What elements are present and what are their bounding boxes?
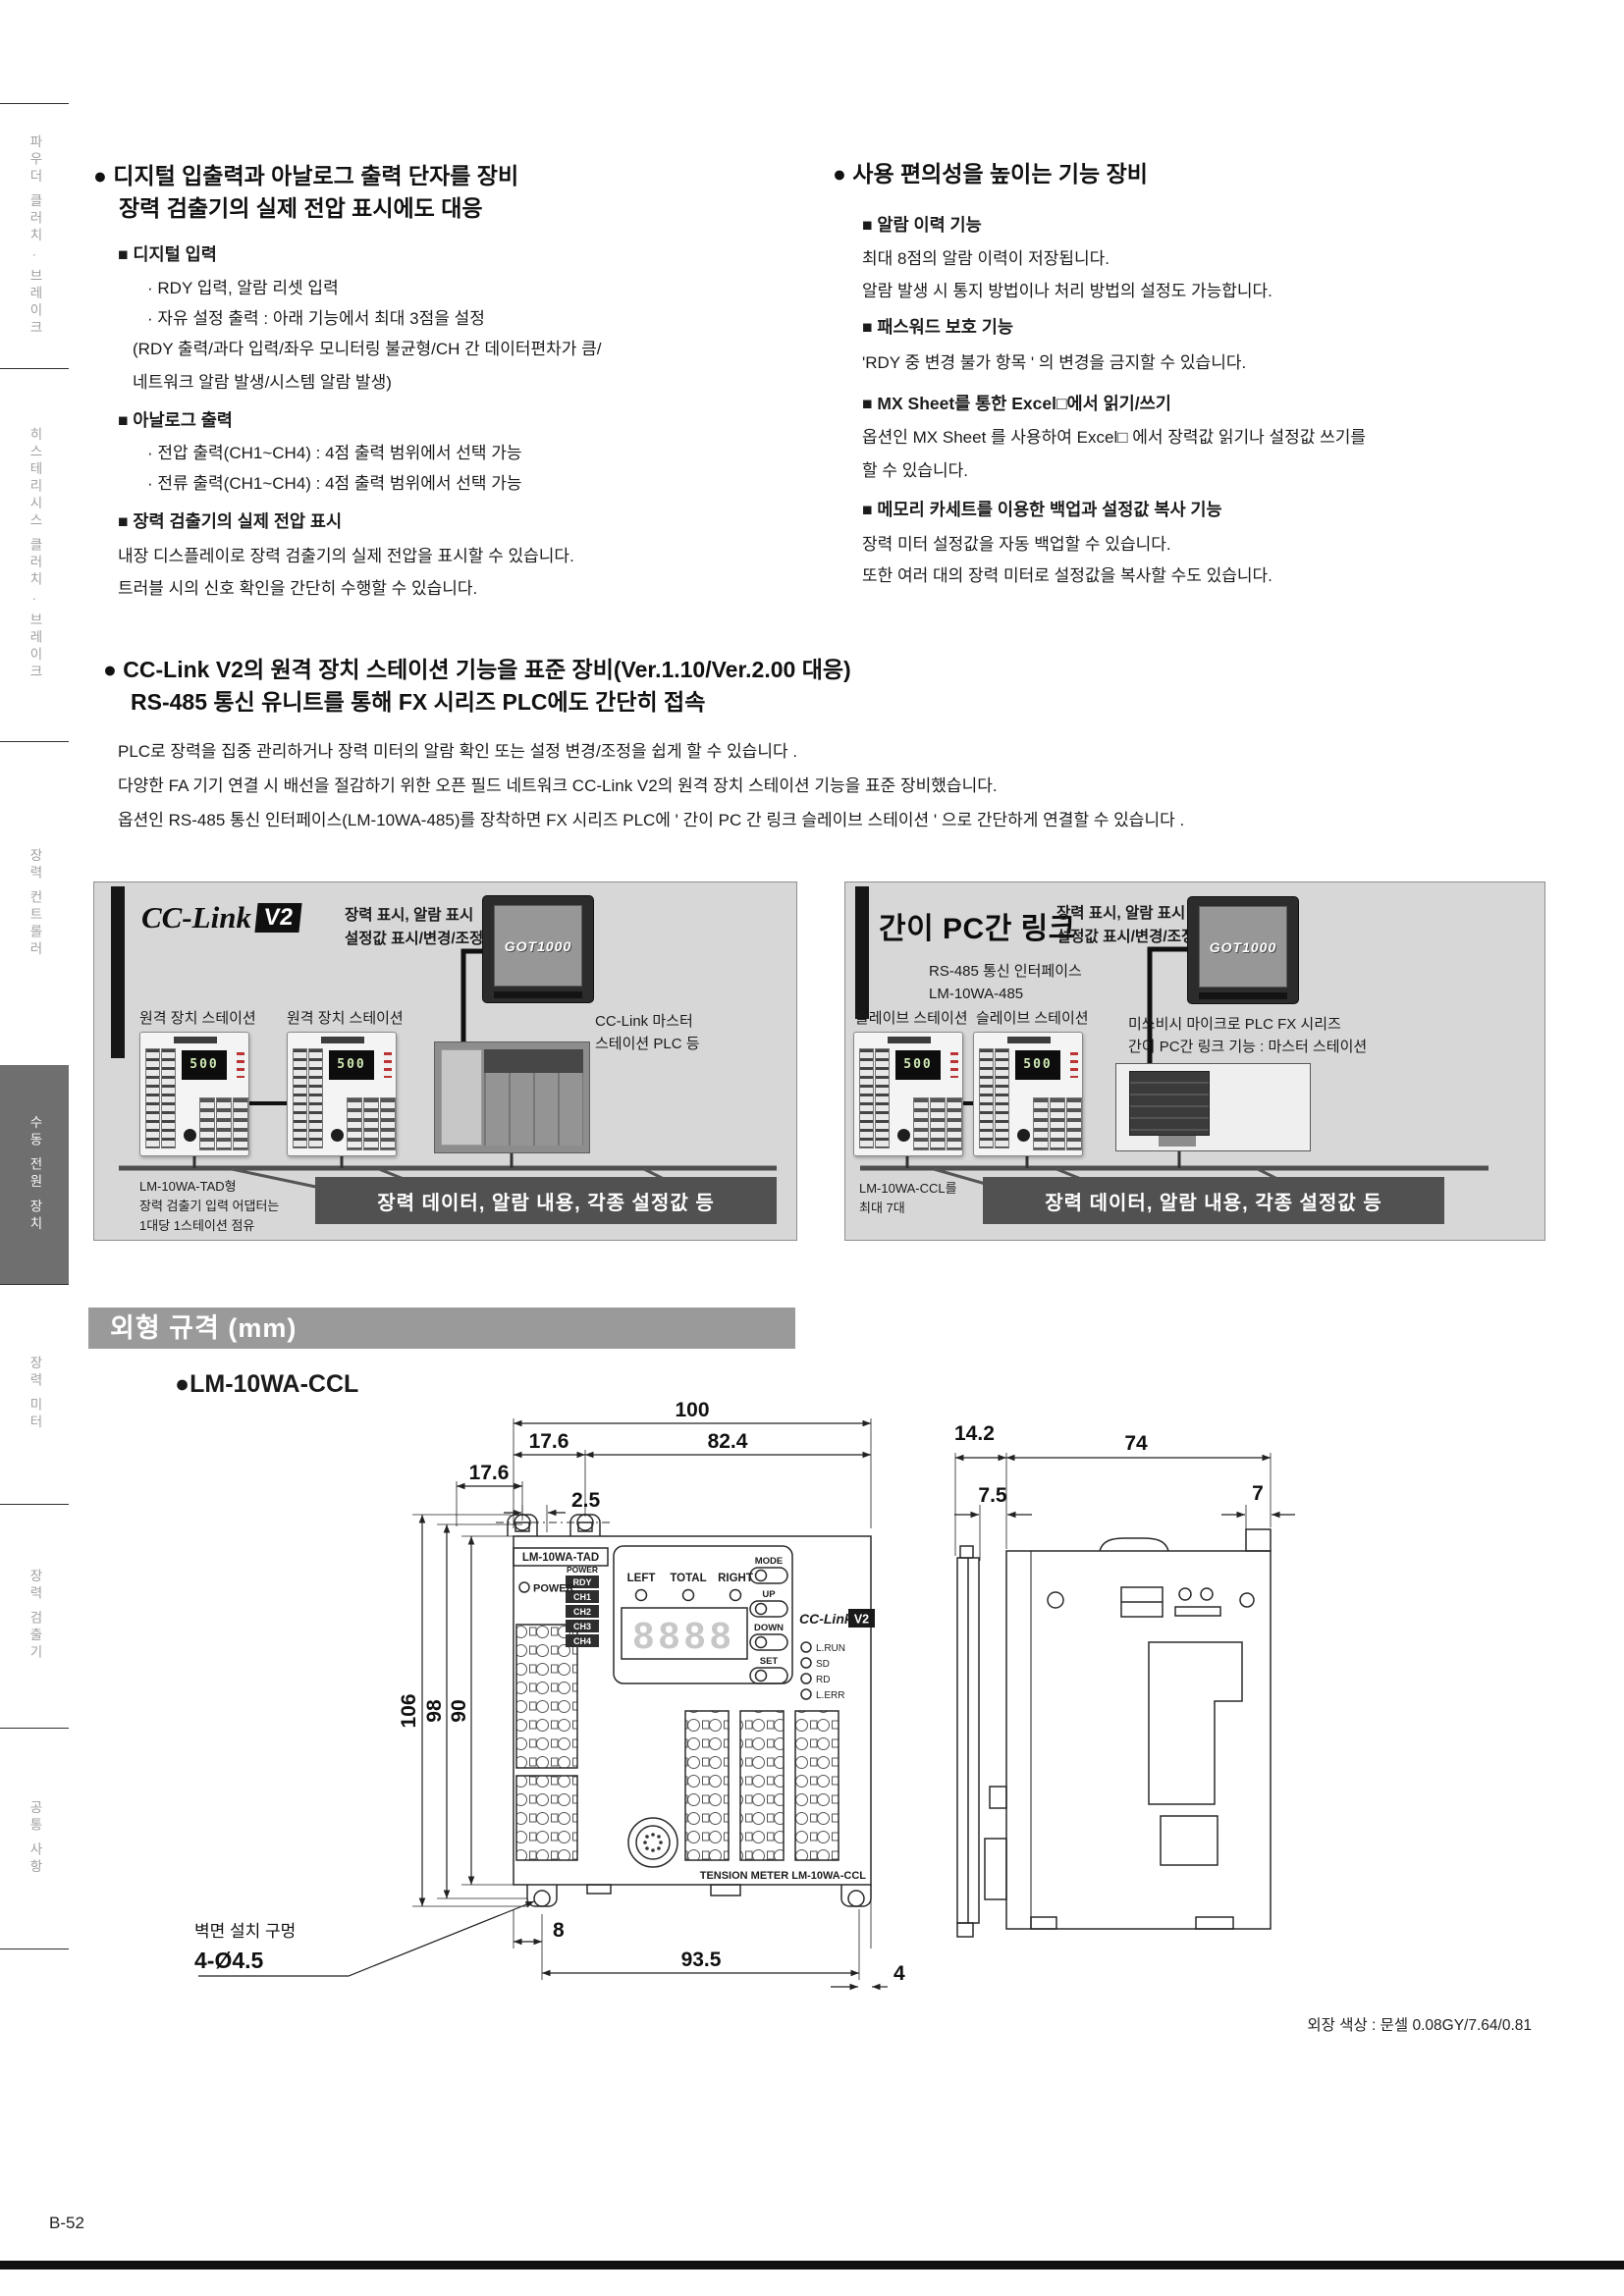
diagram-pclink-box: 간이 PC간 링크 장력 표시, 알람 표시 설정값 표시/변경/조정 등 GO… bbox=[844, 881, 1545, 1241]
hole-diameter-note: 4-Ø4.5 bbox=[194, 1948, 264, 1973]
cclink-v2-badge-small: V2 bbox=[854, 1613, 869, 1627]
meter-led-column bbox=[237, 1052, 244, 1078]
front-view-dimension-drawing: RDY CH1 CH2 CH3 CH4 LM-10WA-TAD POWER PO… bbox=[118, 1399, 923, 2047]
total-label: TOTAL bbox=[670, 1573, 706, 1584]
adapter-note: LM-10WA-TAD형 장력 검출기 입력 어댑터는 1대당 1스테이션 점유 bbox=[139, 1177, 279, 1236]
digital-item: 네트워크 알람 발생/시스템 알람 발생) bbox=[133, 368, 392, 393]
station-label: 슬레이브 스테이션 bbox=[855, 1008, 968, 1031]
password-line: 'RDY 중 변경 불가 항목 ' 의 변경을 금지할 수 있습니다. bbox=[862, 348, 1246, 373]
cclink-logo-text: CC-Link bbox=[141, 900, 251, 935]
meter-brand-bar bbox=[888, 1037, 931, 1043]
dim-106: 106 bbox=[398, 1693, 420, 1728]
feature-title-io-line2: 장력 검출기의 실제 전압 표시에도 대응 bbox=[119, 189, 483, 223]
mode-button-label: MODE bbox=[755, 1556, 784, 1567]
meter-display: 500 bbox=[1015, 1050, 1060, 1080]
interface-line: RS-485 통신 인터페이스 bbox=[929, 961, 1082, 984]
wall-mount-hole-note: 벽면 설치 구멍 bbox=[194, 1922, 296, 1941]
dim-93-5: 93.5 bbox=[681, 1949, 722, 1971]
station-label: 슬레이브 스테이션 bbox=[976, 1008, 1089, 1031]
sidebar-label: 수동 전원 장치 bbox=[25, 1115, 44, 1234]
meter-knob bbox=[897, 1129, 910, 1142]
catalog-page: 파우더 클러치 · 브레이크 히스테리시스 클러치 · 브레이크 장력 컨트롤러… bbox=[0, 0, 1624, 2296]
analog-item: · 전류 출력(CH1~CH4) : 4점 출력 범위에서 선택 가능 bbox=[147, 469, 522, 494]
got-caption: 장력 표시, 알람 표시 설정값 표시/변경/조정 등 bbox=[345, 904, 502, 951]
cclink-master-plc bbox=[434, 1041, 590, 1153]
dim-82-4: 82.4 bbox=[708, 1430, 748, 1453]
got1000-terminal: GOT1000 bbox=[1187, 896, 1299, 1004]
meter-terminal-strip bbox=[161, 1048, 176, 1148]
dim-100: 100 bbox=[675, 1399, 709, 1421]
mxsheet-line: 할 수 있습니다. bbox=[862, 456, 968, 481]
sidebar-item-tension-detector: 장력 검출기 bbox=[0, 1504, 69, 1728]
set-button-label: SET bbox=[760, 1656, 779, 1667]
meter-led-column bbox=[950, 1052, 958, 1078]
ch-label: RDY bbox=[572, 1577, 591, 1587]
left-label: LEFT bbox=[627, 1573, 656, 1584]
meter-brand-bar bbox=[1007, 1037, 1051, 1043]
dim-2-5: 2.5 bbox=[571, 1489, 601, 1512]
meter-terminal-strip bbox=[930, 1097, 946, 1150]
master-label-line: 스테이션 PLC 등 bbox=[595, 1034, 700, 1056]
meter-terminal-strip bbox=[308, 1048, 323, 1148]
dim-7: 7 bbox=[1252, 1482, 1264, 1505]
note-line: 최대 7대 bbox=[859, 1199, 957, 1218]
dim-8: 8 bbox=[553, 1919, 565, 1942]
side-device-outline bbox=[957, 1529, 1271, 1937]
fx-plc-unit bbox=[1129, 1071, 1210, 1136]
lerr-led-label: L.ERR bbox=[816, 1690, 844, 1701]
password-header: ■ 패스워드 보호 기능 bbox=[862, 314, 1013, 339]
memory-cassette-line: 장력 미터 설정값을 자동 백업할 수 있습니다. bbox=[862, 530, 1171, 555]
page-number: B-52 bbox=[49, 2214, 84, 2233]
got1000-terminal: GOT1000 bbox=[482, 895, 594, 1003]
meter-led-column bbox=[1070, 1052, 1078, 1078]
cclink-v2-badge: V2 bbox=[254, 903, 302, 933]
sidebar-label: 장력 컨트롤러 bbox=[25, 848, 44, 959]
ch-label: CH3 bbox=[573, 1622, 591, 1631]
power-led-label: POWER bbox=[533, 1583, 574, 1595]
sidebar-item-hysteresis-clutch-brake: 히스테리시스 클러치 · 브레이크 bbox=[0, 368, 69, 741]
alarm-history-line: 알람 발생 시 통지 방법이나 처리 방법의 설정도 가능합니다. bbox=[862, 277, 1272, 301]
master-label-line: CC-Link 마스터 bbox=[595, 1011, 700, 1034]
rs485-interface-label: RS-485 통신 인터페이스 LM-10WA-485 bbox=[929, 961, 1082, 1005]
sidebar-item-tension-controller: 장력 컨트롤러 bbox=[0, 741, 69, 1065]
side-dimension-labels: 14.2 74 7.5 7 bbox=[954, 1422, 1264, 1507]
data-banner: 장력 데이터, 알람 내용, 각종 설정값 등 bbox=[983, 1177, 1444, 1224]
ch-label: CH1 bbox=[573, 1592, 591, 1602]
up-button-label: UP bbox=[762, 1589, 776, 1600]
dim-7-5: 7.5 bbox=[978, 1484, 1007, 1507]
exterior-color-note: 외장 색상 : 문셀 0.08GY/7.64/0.81 bbox=[1208, 2013, 1532, 2035]
dim-90: 90 bbox=[448, 1699, 470, 1722]
fx-plc-connector bbox=[1159, 1136, 1196, 1147]
mxsheet-header: ■ MX Sheet를 통한 Excel□에서 읽기/쓰기 bbox=[862, 391, 1171, 415]
fx-master-label: 미쓰비시 마이크로 PLC FX 시리즈 간이 PC간 링크 기능 : 마스터 … bbox=[1128, 1014, 1367, 1058]
sidebar-item-tension-meter: 장력 미터 bbox=[0, 1284, 69, 1504]
got-screen: GOT1000 bbox=[494, 905, 582, 987]
dim-74: 74 bbox=[1124, 1432, 1148, 1455]
cclink-paragraph-line: PLC로 장력을 집중 관리하거나 장력 미터의 알람 확인 또는 설정 변경/… bbox=[118, 737, 797, 762]
master-label-line: 미쓰비시 마이크로 PLC FX 시리즈 bbox=[1128, 1014, 1367, 1037]
sidebar-label: 장력 검출기 bbox=[25, 1569, 44, 1662]
dim-98: 98 bbox=[423, 1699, 446, 1723]
meter-display-value: 500 bbox=[337, 1057, 365, 1072]
power-column-label: POWER bbox=[567, 1565, 598, 1575]
cclink-logo-small: CC-Link bbox=[799, 1611, 853, 1627]
voltage-display-header: ■ 장력 검출기의 실제 전압 표시 bbox=[118, 508, 342, 533]
meter-display-value: 500 bbox=[903, 1057, 932, 1072]
got-screen: GOT1000 bbox=[1199, 906, 1287, 988]
meter-knob bbox=[1017, 1129, 1030, 1142]
digital-item: · 자유 설정 출력 : 아래 기능에서 최대 3점을 설정 bbox=[147, 304, 485, 329]
cclink-title-line1: ● CC-Link V2의 원격 장치 스테이션 기능을 표준 장비(Ver.1… bbox=[103, 651, 851, 684]
caption-line: 장력 표시, 알람 표시 bbox=[345, 904, 502, 928]
model-heading: ●LM-10WA-CCL bbox=[175, 1370, 358, 1399]
tension-meter-unit: 500 bbox=[287, 1032, 397, 1156]
feature-title-usability: ● 사용 편의성을 높이는 기능 장비 bbox=[833, 155, 1148, 188]
fx-plc-illustration bbox=[1115, 1063, 1311, 1151]
meter-knob bbox=[331, 1129, 344, 1142]
caption-line: 설정값 표시/변경/조정 등 bbox=[345, 928, 502, 951]
note-line: 장력 검출기 입력 어댑터는 bbox=[139, 1197, 279, 1216]
got-label: GOT1000 bbox=[505, 938, 571, 954]
meter-terminal-strip bbox=[947, 1097, 962, 1150]
master-station-label: CC-Link 마스터 스테이션 PLC 등 bbox=[595, 1011, 700, 1055]
seven-segment-digits: 8888 bbox=[633, 1616, 736, 1657]
station-label: 원격 장치 스테이션 bbox=[287, 1008, 404, 1031]
got-label: GOT1000 bbox=[1210, 939, 1276, 955]
digital-item: (RDY 출력/과다 입력/좌우 모니터링 불균형/CH 간 데이터편차가 큼/ bbox=[133, 335, 601, 359]
note-line: 1대당 1스테이션 점유 bbox=[139, 1216, 279, 1236]
meter-display: 500 bbox=[329, 1050, 374, 1080]
meter-terminal-strip bbox=[293, 1048, 307, 1148]
meter-terminal-strip bbox=[347, 1097, 362, 1150]
meter-terminal-strip bbox=[1033, 1097, 1049, 1150]
meter-led-column bbox=[384, 1052, 392, 1078]
sidebar-item-powder-clutch-brake: 파우더 클러치 · 브레이크 bbox=[0, 103, 69, 368]
sidebar-label: 공통 사항 bbox=[25, 1800, 44, 1877]
got-button-bar bbox=[1199, 992, 1287, 999]
tension-meter-unit: 500 bbox=[973, 1032, 1083, 1156]
meter-terminal-strip bbox=[216, 1097, 232, 1150]
meter-terminal-strip bbox=[979, 1048, 994, 1148]
model-tag: LM-10WA-TAD bbox=[522, 1552, 599, 1564]
plc-top-row bbox=[484, 1049, 583, 1073]
data-banner: 장력 데이터, 알람 내용, 각종 설정값 등 bbox=[315, 1177, 777, 1224]
down-button-label: DOWN bbox=[754, 1623, 784, 1633]
cclink-paragraph-line: 옵션인 RS-485 통신 인터페이스(LM-10WA-485)를 장착하면 F… bbox=[118, 806, 1184, 830]
analog-item: · 전압 출력(CH1~CH4) : 4점 출력 범위에서 선택 가능 bbox=[147, 439, 522, 463]
ccl-count-note: LM-10WA-CCL를 최대 7대 bbox=[859, 1179, 957, 1218]
feature-title-io-line1: ● 디지털 입출력과 아날로그 출력 단자를 장비 bbox=[93, 157, 518, 190]
sidebar-item-common-info: 공통 사항 bbox=[0, 1728, 69, 1949]
front-connector-pins bbox=[643, 1833, 663, 1852]
meter-terminal-strip bbox=[199, 1097, 215, 1150]
sidebar-label: 파우더 클러치 · 브레이크 bbox=[25, 134, 44, 338]
meter-terminal-strip bbox=[995, 1048, 1009, 1148]
meter-terminal-strip bbox=[380, 1097, 396, 1150]
alarm-history-header: ■ 알람 이력 기능 bbox=[862, 212, 982, 237]
side-view-dimension-drawing: 14.2 74 7.5 7 bbox=[903, 1399, 1355, 2047]
meter-terminal-strip bbox=[363, 1097, 379, 1150]
meter-brand-bar bbox=[174, 1037, 217, 1043]
tension-meter-unit: 500 bbox=[139, 1032, 249, 1156]
note-line: LM-10WA-TAD형 bbox=[139, 1177, 279, 1197]
meter-terminal-strip bbox=[913, 1097, 929, 1150]
meter-display-value: 500 bbox=[189, 1057, 218, 1072]
meter-terminal-strip bbox=[233, 1097, 248, 1150]
memory-cassette-line: 또한 여러 대의 장력 미터로 설정값을 복사할 수도 있습니다. bbox=[862, 561, 1272, 586]
cclink-paragraph-line: 다양한 FA 기기 연결 시 배선을 절감하기 위한 오픈 필드 네트워크 CC… bbox=[118, 772, 998, 796]
rd-led-label: RD bbox=[816, 1675, 830, 1685]
digital-item: · RDY 입력, 알람 리셋 입력 bbox=[147, 274, 339, 298]
sidebar-label: 장력 미터 bbox=[25, 1356, 44, 1432]
tension-meter-nameplate: TENSION METER LM-10WA-CCL bbox=[700, 1870, 867, 1882]
meter-terminal-strip bbox=[1066, 1097, 1082, 1150]
right-label: RIGHT bbox=[718, 1573, 753, 1584]
digital-input-header: ■ 디지털 입력 bbox=[118, 241, 217, 266]
box-accent-bar bbox=[855, 886, 869, 1019]
sd-led-label: SD bbox=[816, 1659, 830, 1670]
box-accent-bar bbox=[111, 886, 125, 1058]
master-label-line: 간이 PC간 링크 기능 : 마스터 스테이션 bbox=[1128, 1037, 1367, 1059]
dim-17-6-a: 17.6 bbox=[529, 1430, 569, 1453]
sidebar-label: 히스테리시스 클러치 · 브레이크 bbox=[25, 427, 44, 681]
side-dimension-lines bbox=[954, 1453, 1295, 1561]
dim-14-2: 14.2 bbox=[954, 1422, 995, 1445]
sidebar-divider bbox=[0, 1949, 69, 1949]
memory-cassette-header: ■ 메모리 카세트를 이용한 백업과 설정값 복사 기능 bbox=[862, 497, 1222, 521]
meter-terminal-strip bbox=[1050, 1097, 1065, 1150]
voltage-line: 내장 디스플레이로 장력 검출기의 실제 전압을 표시할 수 있습니다. bbox=[118, 542, 574, 566]
cclink-v2-logo: CC-Link V2 bbox=[141, 900, 300, 935]
lrun-led-label: L.RUN bbox=[816, 1643, 845, 1654]
meter-terminal-strip bbox=[875, 1048, 890, 1148]
meter-brand-bar bbox=[321, 1037, 364, 1043]
pclink-title: 간이 PC간 링크 bbox=[879, 904, 1076, 947]
meter-display-value: 500 bbox=[1023, 1057, 1052, 1072]
sidebar-item-manual-power-device-active: 수동 전원 장치 bbox=[0, 1065, 69, 1284]
meter-terminal-strip bbox=[859, 1048, 874, 1148]
got-button-bar bbox=[494, 991, 582, 998]
note-line: LM-10WA-CCL를 bbox=[859, 1179, 957, 1199]
meter-terminal-strip bbox=[145, 1048, 160, 1148]
diagram-cclink-box: CC-Link V2 장력 표시, 알람 표시 설정값 표시/변경/조정 등 G… bbox=[93, 881, 797, 1241]
bottom-rule bbox=[0, 2261, 1624, 2269]
meter-display: 500 bbox=[182, 1050, 227, 1080]
analog-output-header: ■ 아날로그 출력 bbox=[118, 407, 233, 432]
plc-power-module bbox=[441, 1049, 482, 1146]
alarm-history-line: 최대 8점의 알람 이력이 저장됩니다. bbox=[862, 244, 1110, 269]
ch-label: CH4 bbox=[573, 1636, 591, 1646]
station-label: 원격 장치 스테이션 bbox=[139, 1008, 256, 1031]
meter-display: 500 bbox=[895, 1050, 941, 1080]
ch-label: CH2 bbox=[573, 1607, 591, 1617]
outline-section-header: 외형 규격 (mm) bbox=[88, 1308, 795, 1349]
meter-knob bbox=[184, 1129, 196, 1142]
interface-line: LM-10WA-485 bbox=[929, 984, 1082, 1006]
mxsheet-line: 옵션인 MX Sheet 를 사용하여 Excel□ 에서 장력값 읽기나 설정… bbox=[862, 423, 1366, 448]
tension-meter-unit: 500 bbox=[853, 1032, 963, 1156]
cclink-title-line2: RS-485 통신 유니트를 통해 FX 시리즈 PLC에도 간단히 접속 bbox=[131, 683, 705, 717]
dim-17-6-b: 17.6 bbox=[469, 1462, 510, 1484]
voltage-line: 트러블 시의 신호 확인을 간단히 수행할 수 있습니다. bbox=[118, 574, 477, 599]
